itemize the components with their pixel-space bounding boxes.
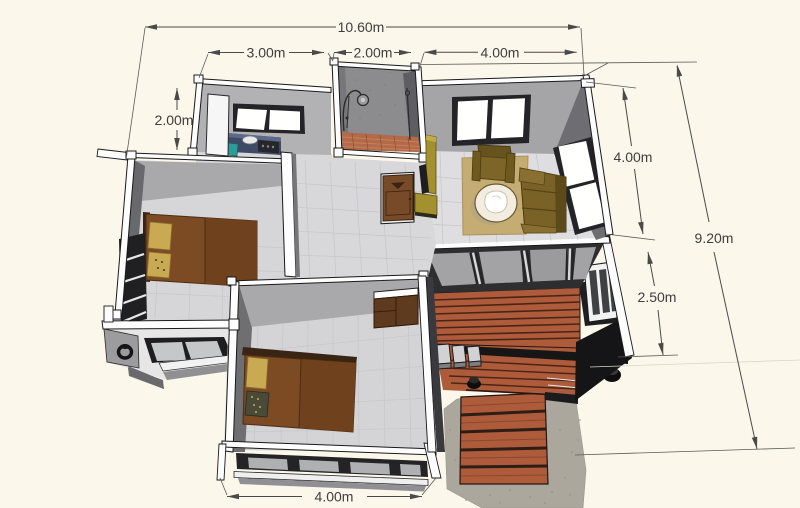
svg-text:2.00m: 2.00m <box>155 112 194 128</box>
svg-text:3.00m: 3.00m <box>247 45 286 61</box>
svg-text:4.00m: 4.00m <box>481 44 520 60</box>
svg-text:2.00m: 2.00m <box>354 45 393 61</box>
svg-text:2.50m: 2.50m <box>638 289 677 305</box>
svg-text:9.20m: 9.20m <box>695 230 734 246</box>
svg-text:4.00m: 4.00m <box>614 149 653 165</box>
svg-text:10.60m: 10.60m <box>338 19 385 35</box>
svg-text:4.00m: 4.00m <box>315 489 354 505</box>
